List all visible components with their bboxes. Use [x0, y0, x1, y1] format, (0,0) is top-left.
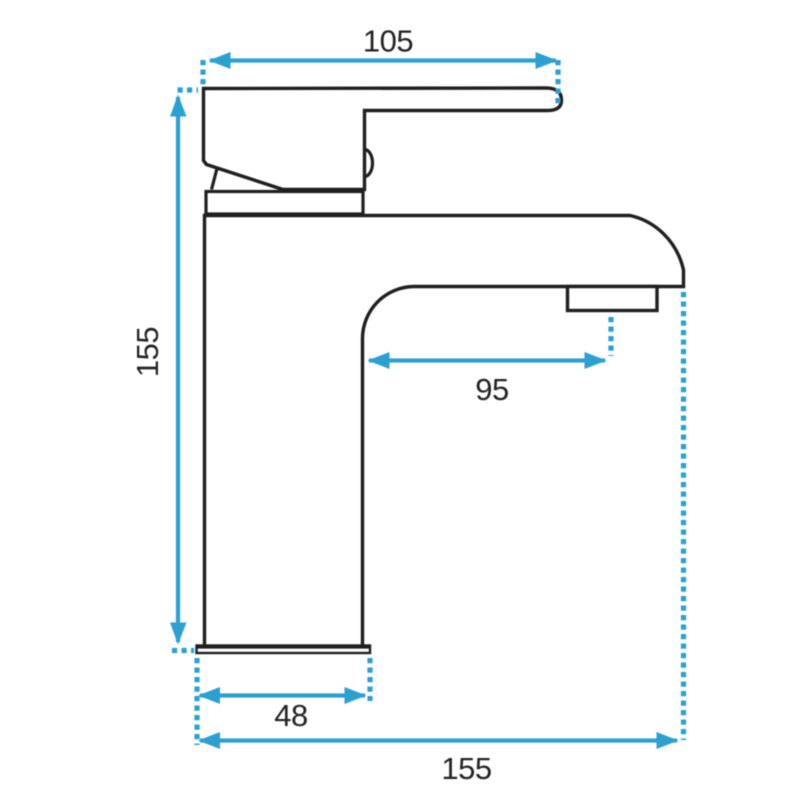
svg-text:48: 48	[274, 698, 307, 733]
svg-text:155: 155	[441, 751, 491, 786]
svg-text:155: 155	[130, 327, 165, 377]
svg-text:95: 95	[475, 372, 508, 407]
svg-text:105: 105	[363, 24, 413, 59]
